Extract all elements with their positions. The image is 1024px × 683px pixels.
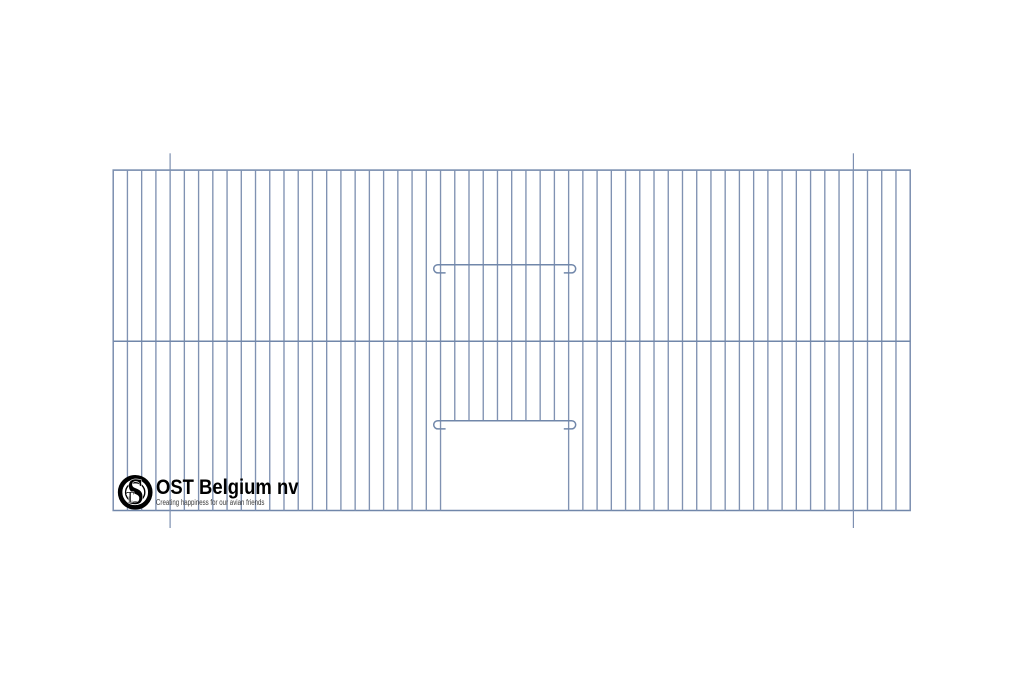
svg-text:OST Belgium nv: OST Belgium nv [156,476,299,499]
svg-text:T: T [126,489,134,507]
svg-text:Creating happiness for our avi: Creating happiness for our avian friends [156,498,265,507]
